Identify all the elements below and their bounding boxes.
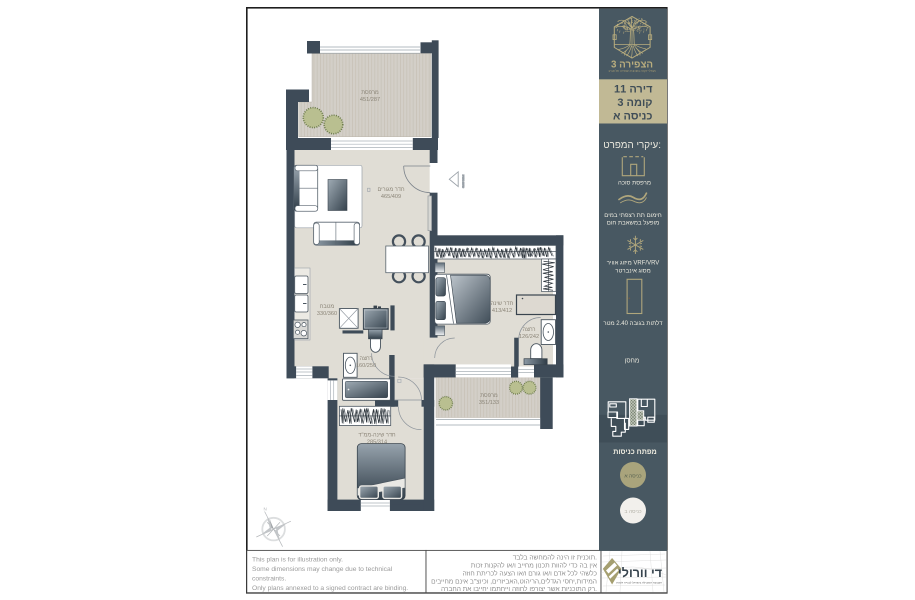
svg-text:מרפסת סוכה: מרפסת סוכה <box>618 181 651 187</box>
svg-text:כניסה א: כניסה א <box>613 111 653 123</box>
svg-text:חימום תת רצפתי במים: חימום תת רצפתי במים <box>604 213 662 219</box>
svg-text:עיקרי המפרט:: עיקרי המפרט: <box>603 140 661 151</box>
svg-text:Only plans annexed to a signed: Only plans annexed to a signed contract … <box>252 585 408 592</box>
svg-text:די וורולי: די וורולי <box>618 566 662 580</box>
svg-text:מיזוג אוויר VRF/VRV: מיזוג אוויר VRF/VRV <box>607 261 660 267</box>
svg-text:תוכנית זו הינה להמחשה בלבד.: תוכנית זו הינה להמחשה בלבד. <box>513 554 597 562</box>
svg-text:רחצה: רחצה <box>522 327 535 333</box>
svg-text:N: N <box>264 507 267 512</box>
svg-text:הקבוצה המובילה בישראל לבנייה ו: הקבוצה המובילה בישראל לבנייה ויזמות <box>616 581 662 585</box>
svg-text:160/250: 160/250 <box>356 363 376 369</box>
svg-text:מרפסת: מרפסת <box>480 393 498 399</box>
svg-text:רחצה: רחצה <box>359 356 372 362</box>
svg-text:This plan is for illustration: This plan is for illustration only. <box>252 557 343 564</box>
svg-text:כניסה א: כניסה א <box>624 473 642 479</box>
svg-text:כניסה ראשית: כניסה ראשית <box>461 175 464 189</box>
svg-text:מחסן: מחסן <box>625 358 639 365</box>
svg-text:מסוג אינברטר: מסוג אינברטר <box>615 269 650 275</box>
svg-text:כניסה ב: כניסה ב <box>624 509 641 515</box>
svg-text:285/314: 285/314 <box>367 440 387 446</box>
svg-text:מגדלי יוקרה בשכונת הצפירה תל א: מגדלי יוקרה בשכונת הצפירה תל אביב <box>608 69 655 73</box>
svg-text:דלתות בגובה 2.40 מטר: דלתות בגובה 2.40 מטר <box>603 319 663 327</box>
svg-text:המידות,יחסי הגדלים,הריהוט,האבי: המידות,יחסי הגדלים,הריהוט,האביזרים, וכיו… <box>431 578 597 586</box>
svg-text:מפתח כניסות: מפתח כניסות <box>613 447 657 456</box>
svg-text:חדר מגורים: חדר מגורים <box>377 187 404 193</box>
svg-text:330/360: 330/360 <box>317 311 337 317</box>
svg-text:קומה 3: קומה 3 <box>617 97 652 109</box>
svg-text:כלשהי לכל אדם ו/או גורם ו/או ה: כלשהי לכל אדם ו/או גורם ו/או הצעה לכריתת… <box>462 570 597 578</box>
svg-text:מטבח: מטבח <box>320 304 335 310</box>
svg-text:רק התוכניות אשר יצורפו לחוזה ו: רק התוכניות אשר יצורפו לחוזה וייחתמו יחי… <box>441 585 597 593</box>
svg-text:אין בה כדי להוות תכנון מחייב ו: אין בה כדי להוות תכנון מחייב ו/או להקנות… <box>471 562 598 570</box>
svg-text:חדר שינה-ממ"ד: חדר שינה-ממ"ד <box>358 433 396 439</box>
svg-text:451/287: 451/287 <box>360 97 380 103</box>
svg-text:351/133: 351/133 <box>479 400 499 406</box>
svg-text:מופעל במשאבת חום: מופעל במשאבת חום <box>607 219 659 227</box>
svg-text:413/412: 413/412 <box>492 308 512 314</box>
svg-text:דירה 11: דירה 11 <box>614 84 653 96</box>
svg-text:חדר שינה: חדר שינה <box>491 301 514 307</box>
svg-text:Some dimensions may change due: Some dimensions may change due to techni… <box>252 566 393 573</box>
svg-text:126/242: 126/242 <box>519 334 539 340</box>
svg-text:constraints.: constraints. <box>252 576 286 583</box>
svg-text:מרפסת: מרפסת <box>361 90 379 96</box>
svg-text:465/409: 465/409 <box>381 194 401 200</box>
